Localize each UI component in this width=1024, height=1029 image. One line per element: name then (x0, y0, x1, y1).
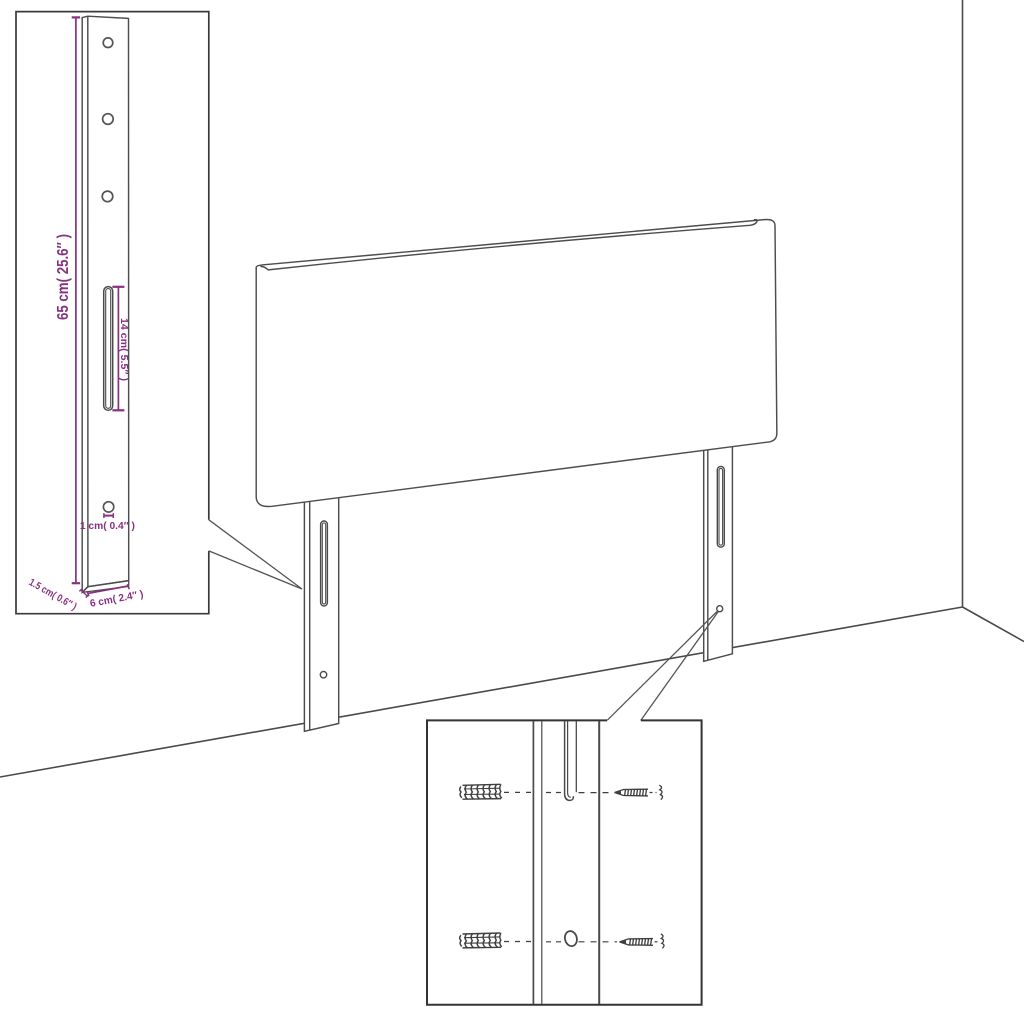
svg-text:1 cm( 0.4″ ): 1 cm( 0.4″ ) (80, 521, 135, 532)
svg-text:65 cm( 25.6″ ): 65 cm( 25.6″ ) (55, 234, 72, 320)
svg-text:14 cm( 5.5″ ): 14 cm( 5.5″ ) (118, 318, 129, 381)
